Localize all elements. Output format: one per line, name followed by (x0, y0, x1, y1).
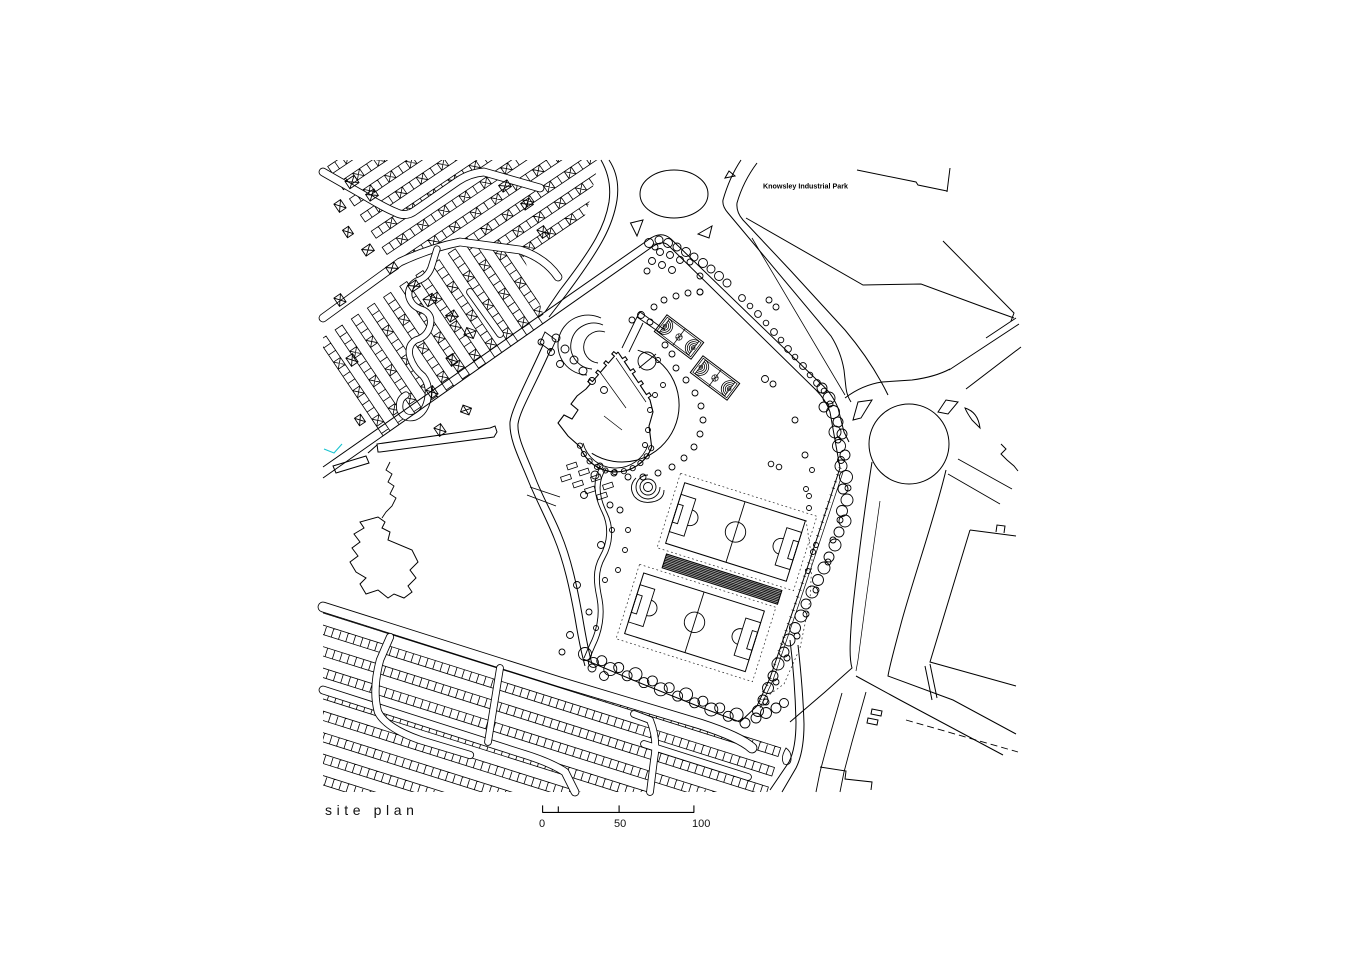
svg-text:site plan: site plan (325, 802, 419, 818)
svg-text:Knowsley Industrial Park: Knowsley Industrial Park (763, 182, 849, 191)
svg-text:50: 50 (614, 818, 626, 830)
svg-text:0: 0 (539, 818, 545, 830)
svg-text:100: 100 (692, 818, 710, 830)
